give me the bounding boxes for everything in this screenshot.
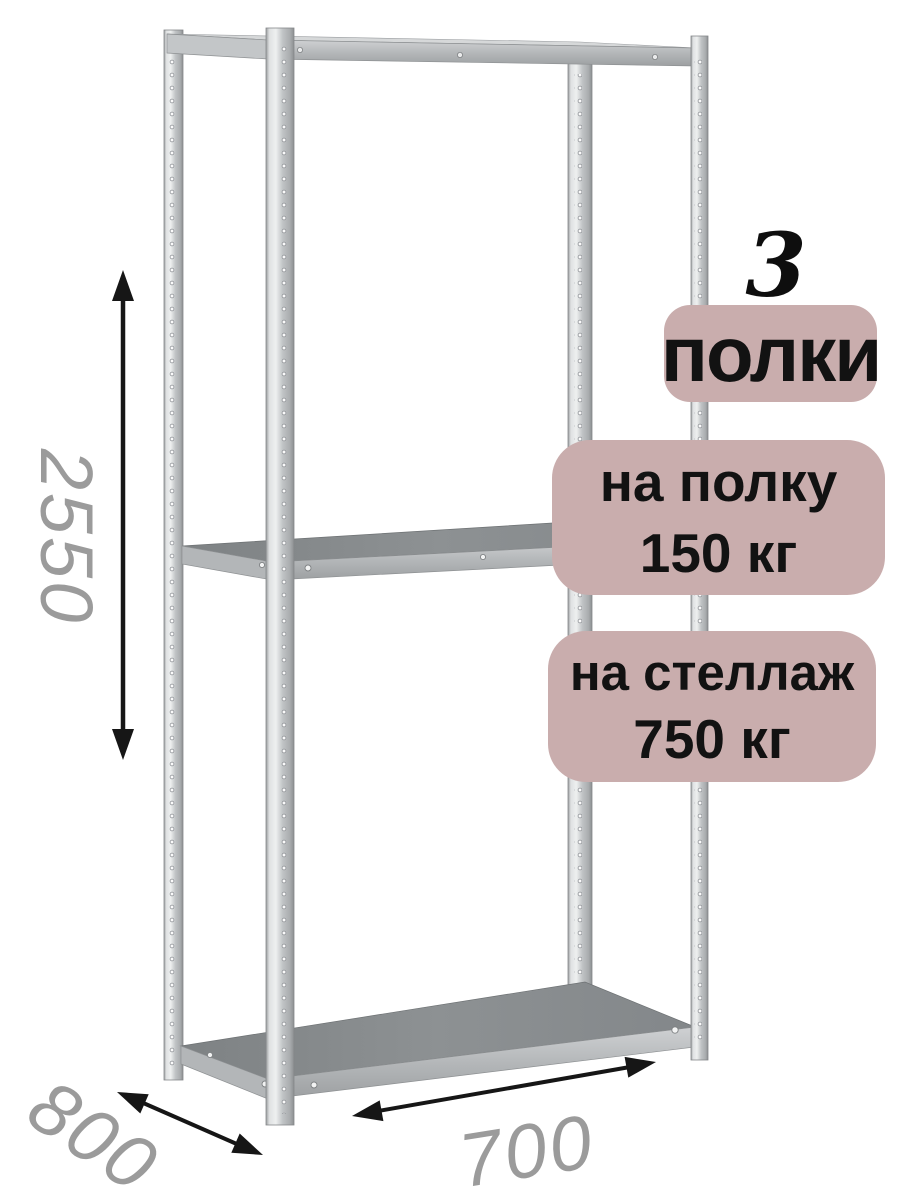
width-dimension-label: 700 bbox=[454, 1104, 600, 1200]
product-image: 2550 800 700 3 полки на полку 150 кг на … bbox=[0, 0, 900, 1200]
shelf-count-badge-label: полки bbox=[661, 315, 880, 393]
bottom-shelf bbox=[181, 982, 695, 1099]
height-arrow bbox=[112, 270, 134, 760]
total-load-line1: на стеллаж bbox=[570, 647, 854, 698]
per-shelf-load-line2: 150 кг bbox=[640, 526, 797, 581]
height-dimension-label: 2550 bbox=[29, 449, 103, 626]
shelf-count-number: 3 bbox=[745, 221, 806, 309]
front-left-post bbox=[266, 28, 294, 1125]
total-load-badge: на стеллаж 750 кг bbox=[548, 631, 876, 782]
total-load-line2: 750 кг bbox=[633, 712, 790, 767]
top-shelf bbox=[167, 34, 697, 66]
per-shelf-load-badge: на полку 150 кг bbox=[552, 440, 885, 595]
back-left-post bbox=[164, 30, 183, 1080]
shelf-count-badge: полки bbox=[664, 305, 877, 402]
shelving-rack-illustration bbox=[0, 0, 900, 1200]
per-shelf-load-line1: на полку bbox=[600, 455, 838, 510]
